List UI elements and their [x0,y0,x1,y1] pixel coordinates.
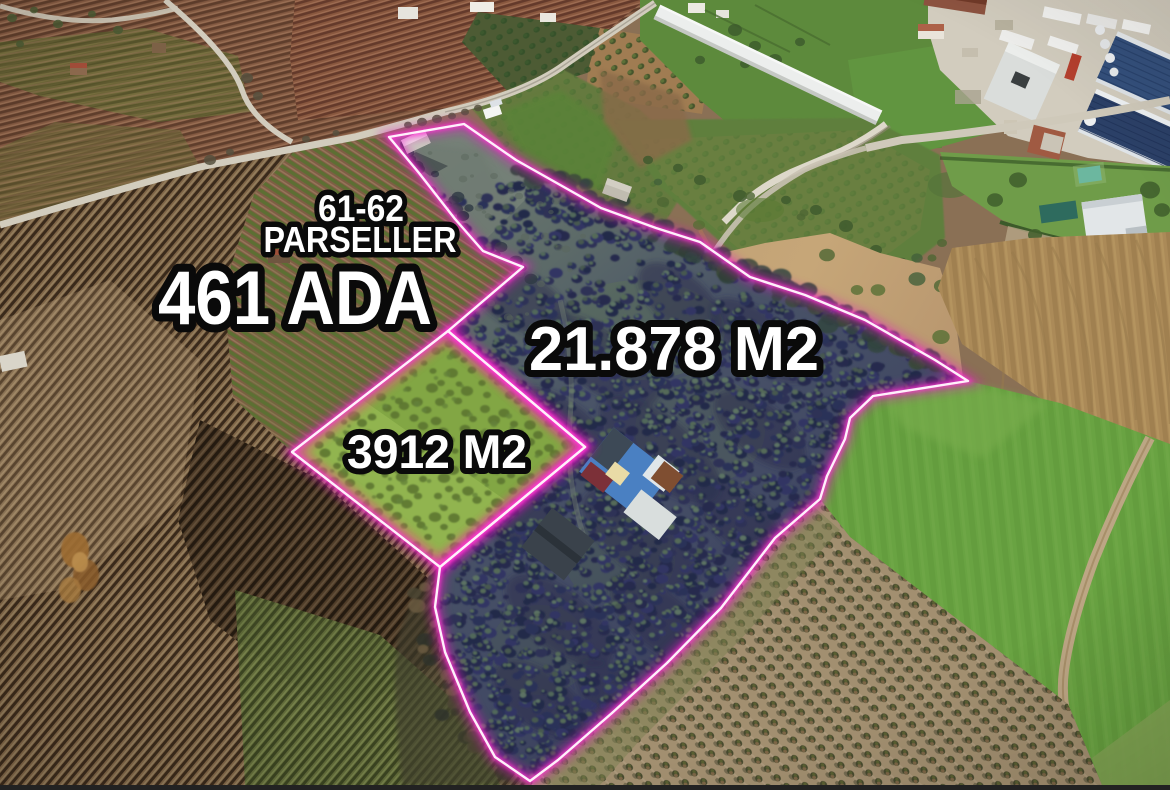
svg-text:3912 M2: 3912 M2 [347,425,527,478]
svg-text:21.878 M2: 21.878 M2 [529,315,819,384]
svg-text:461 ADA: 461 ADA [158,256,432,341]
svg-text:PARSELLER: PARSELLER [264,219,457,260]
